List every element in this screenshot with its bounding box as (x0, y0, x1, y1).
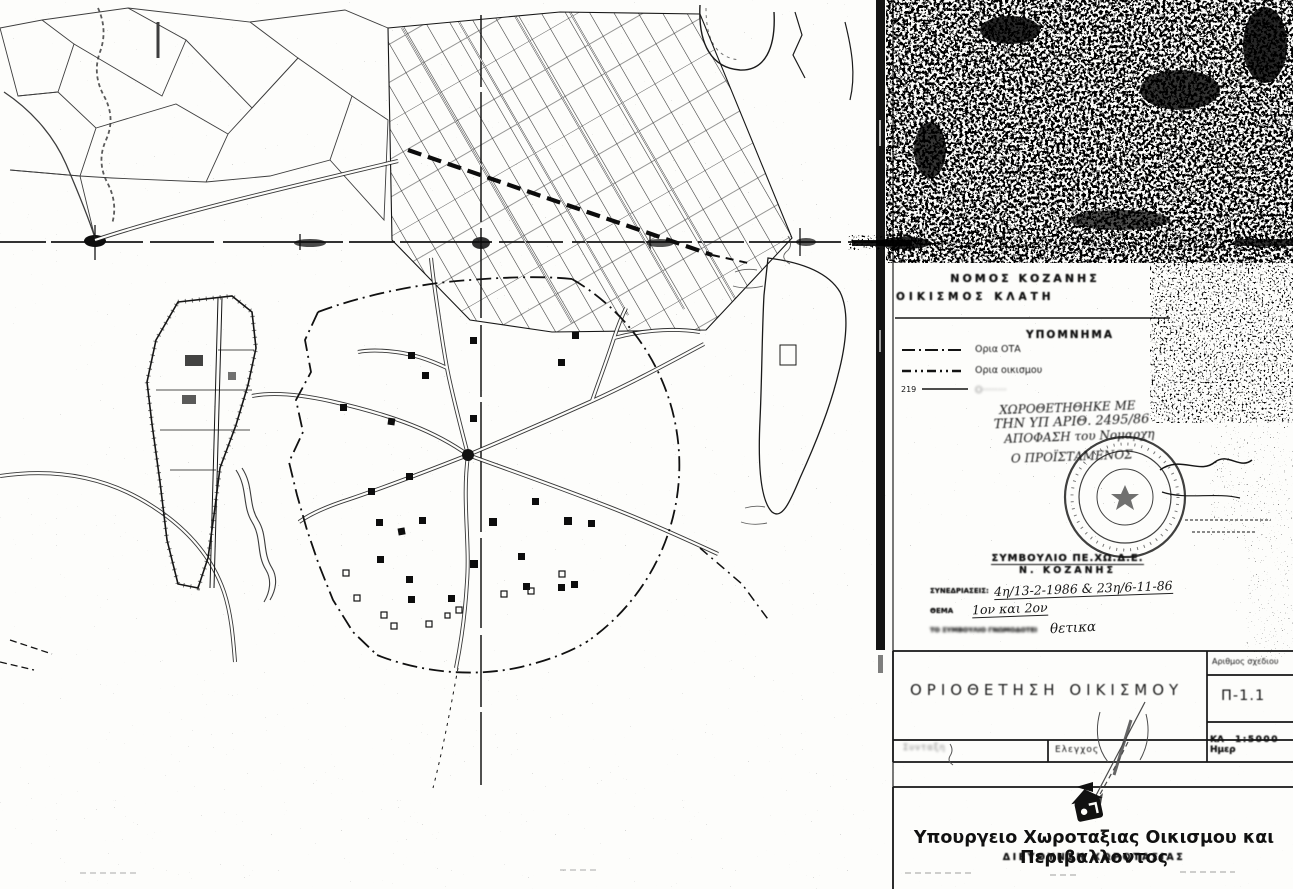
council-stamp: ΣΥΜΒΟΥΛΙΟ ΠΕ.ΧΩ.Δ.Ε. Ν. ΚΟΖΑΝΗΣ ΣΥΝΕΔΡΙΑ… (930, 546, 1205, 636)
drafting-label: Συνταξη (903, 743, 946, 753)
drawing-title: ΟΡΙΟΘΕΤΗΣΗ ΟΙΚΙΣΜΟΥ (910, 681, 1183, 699)
legend-label-illegible: Ο········ (975, 385, 1007, 396)
verdict-label: ΤΟ ΣΥΜΒΟΥΛΙΟ ΓΝΩΜΟΔΟΤΕΙ (930, 626, 1037, 634)
scanned-map-sheet: 219 (0, 0, 1293, 889)
scale-label: ΚΛ (1210, 735, 1224, 745)
scan-fold-border (876, 0, 885, 650)
legend-label-settlement: Ορια οικισμου (975, 365, 1042, 376)
drawing-no-value: Π-1.1 (1221, 688, 1265, 704)
council-stamp-line1: ΣΥΜΒΟΥΛΙΟ ΠΕ.ΧΩ.Δ.Ε. (991, 553, 1143, 565)
legend-label-ota: Ορια ΟΤΑ (975, 344, 1021, 355)
settlement-header: ΟΙΚΙΣΜΟΣ ΚΛΑΤΗ (896, 291, 1116, 303)
date-label: Ημερ (1210, 745, 1236, 755)
sessions-label: ΣΥΝΕΔΡΙΑΣΕΙΣ: (930, 587, 989, 595)
sessions-value: 4η/13-2-1986 & 23η/6-11-86 (994, 578, 1173, 600)
scale-value: 1:5000 (1235, 735, 1279, 745)
prefecture-header: ΝΟΜΟΣ ΚΟΖΑΝΗΣ (930, 272, 1120, 285)
scale-cell: ΚΛ 1:5000 (1210, 727, 1279, 746)
check-label: Ελεγχος (1055, 745, 1099, 755)
verdict-value: θετικα (1050, 619, 1097, 637)
directorate-title: ΔΙΕΥΘΥΝΣΗ ΧΩΡΟΤΑΞΙΑΣ (898, 852, 1290, 863)
drawing-no-label: Αριθμος σχεδιου (1212, 657, 1279, 666)
legend-title: ΥΠΟΜΝΗΜΑ (1005, 329, 1135, 341)
council-stamp-line2: Ν. ΚΟΖΑΝΗΣ (930, 565, 1205, 576)
scan-bottom-marks (905, 872, 1235, 875)
topic-label: ΘΕΜΑ (930, 607, 953, 615)
legend-symbol-number: 219 (901, 385, 916, 394)
topic-value: 1ον και 2ον (972, 600, 1048, 619)
approval-note: ΧΩΡΟΘΕΤΗΘΗΚΕ ΜΕ ΤΗΝ ΥΠ ΑΡΙΘ. 2495/86 ΑΠΟ… (999, 393, 1291, 466)
